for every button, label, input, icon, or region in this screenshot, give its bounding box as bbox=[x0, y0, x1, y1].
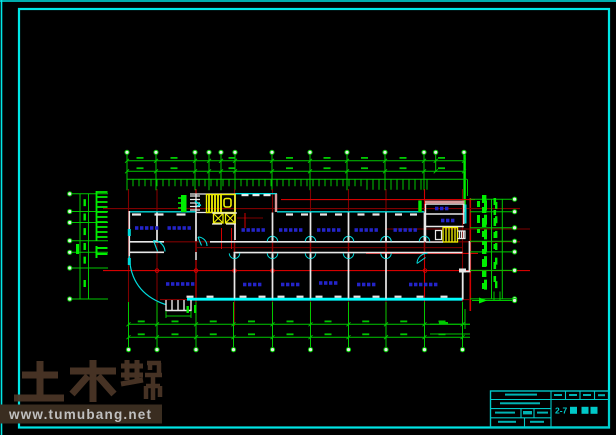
svg-text:www.tumubang.net: www.tumubang.net bbox=[8, 407, 152, 422]
svg-text:2-7: 2-7 bbox=[555, 406, 568, 416]
